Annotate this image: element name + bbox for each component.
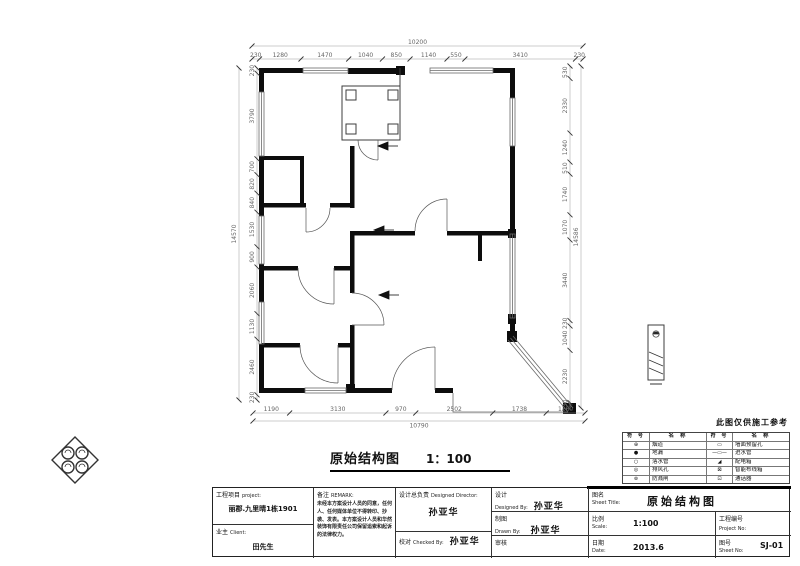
- svg-text:1070: 1070: [562, 220, 569, 235]
- client-cell: 业主 Client: 田先生: [213, 524, 313, 558]
- sheet-title-label-en: Sheet Title:: [592, 500, 620, 506]
- date-cell: 日期 Date: 2013.6: [588, 535, 715, 558]
- designed-label: 设计: [495, 492, 507, 499]
- legend-name: 进水管: [732, 450, 789, 458]
- remark-text: 未经本方案设计人员的同意，任何人、任何媒体单位不得转印、抄袭、发表。本方案设计人…: [317, 501, 392, 540]
- double-circle-icon: ⊚: [623, 476, 649, 484]
- legend-name: 排风孔: [649, 467, 706, 475]
- detail-callout: [649, 331, 663, 384]
- sheet-no-cell: 图号 Sheet No: SJ-01: [715, 535, 791, 558]
- svg-text:230: 230: [562, 317, 569, 329]
- legend-name: 落水管: [649, 459, 706, 467]
- project-no-cell: 工程编号 Project No:: [715, 511, 791, 535]
- svg-text:230: 230: [574, 52, 586, 59]
- sheet-title-label: 图名: [592, 492, 604, 499]
- legend-table: 符 号名 称符 号名 称⊕烟道▭墙面预留孔●地漏—▭—进水管○落水管◢配电箱◎排…: [622, 432, 790, 484]
- client-label-en: Client:: [230, 530, 246, 536]
- svg-text:1040: 1040: [358, 52, 373, 59]
- pipe-icon: —▭—: [706, 450, 732, 458]
- project-no-label-en: Project No:: [719, 526, 746, 532]
- checked-label-en: Checked By:: [413, 540, 444, 546]
- legend-name: 名 称: [732, 433, 789, 441]
- legend-name: 地漏: [649, 450, 706, 458]
- wedge-icon: ◢: [706, 459, 732, 467]
- svg-text:1530: 1530: [249, 222, 256, 237]
- svg-text:230: 230: [562, 399, 569, 411]
- director-cell: 设计总负责 Designed Director: 孙亚华: [395, 488, 491, 531]
- svg-text:14570: 14570: [231, 224, 238, 243]
- svg-text:1140: 1140: [421, 52, 436, 59]
- company-logo-icon: [52, 437, 98, 483]
- svg-text:1130: 1130: [249, 319, 256, 334]
- ring-icon: ◎: [623, 467, 649, 475]
- director-label: 设计总负责: [399, 492, 429, 499]
- scale-cell: 比例 Scale: 1:100: [588, 511, 715, 535]
- svg-text:1740: 1740: [562, 187, 569, 202]
- drawn-label: 制图: [495, 516, 507, 523]
- slot-icon: ▭: [706, 442, 732, 450]
- svg-text:820: 820: [249, 178, 256, 190]
- drawing-sheet: { "sheet": { "note": "此图仅供施工参考", "drawin…: [0, 0, 800, 566]
- svg-text:230: 230: [249, 391, 256, 403]
- legend-name: 通话器: [732, 476, 789, 484]
- walls: [259, 66, 576, 414]
- svg-text:840: 840: [249, 197, 256, 209]
- project-label-en: project:: [242, 493, 261, 499]
- review-cell: 审核: [491, 535, 588, 558]
- construction-note: 此图仅供施工参考: [660, 417, 788, 428]
- svg-text:1040: 1040: [562, 330, 569, 345]
- svg-text:1738: 1738: [512, 406, 527, 413]
- doors: [298, 140, 447, 390]
- svg-text:2502: 2502: [447, 406, 462, 413]
- project-no-label: 工程编号: [719, 516, 743, 523]
- svg-text:14586: 14586: [573, 227, 580, 246]
- svg-text:2060: 2060: [249, 283, 256, 298]
- project-cell: 工程项目 project: 丽郡.九里晴1栋1901: [213, 488, 313, 524]
- title-block: 工程项目 project: 丽郡.九里晴1栋1901 业主 Client: 田先…: [212, 487, 790, 557]
- remark-cell: 备注 REMARK: 未经本方案设计人员的同意，任何人、任何媒体单位不得转印、抄…: [313, 488, 395, 558]
- svg-text:10200: 10200: [408, 39, 427, 46]
- legend-row: ⊚防溅闸⊡通话器: [623, 475, 789, 484]
- legend-name: 名 称: [649, 433, 706, 441]
- legend-row: ◎排风孔⊠智能布线箱: [623, 466, 789, 475]
- fixtures: [342, 68, 664, 380]
- date-value: 2013.6: [633, 543, 664, 552]
- sheet-title-cell: 图名 Sheet Title: 原始结构图: [588, 488, 791, 511]
- svg-text:2330: 2330: [562, 98, 569, 113]
- windows: [259, 68, 573, 412]
- svg-text:10790: 10790: [409, 423, 428, 430]
- director-signature: 孙亚华: [399, 505, 488, 518]
- sheet-no-label-en: Sheet No:: [719, 548, 744, 554]
- drawing-title: 原始结构图: [330, 448, 400, 467]
- designed-signature: 孙亚华: [534, 502, 564, 511]
- svg-text:3130: 3130: [330, 406, 345, 413]
- svg-text:230: 230: [249, 65, 256, 77]
- drawing-scale: 1：100: [426, 450, 471, 467]
- legend-row: ○落水管◢配电箱: [623, 458, 789, 467]
- svg-text:230: 230: [250, 52, 262, 59]
- legend-symbol-header: 符 号: [706, 433, 732, 441]
- checked-signature: 孙亚华: [450, 537, 480, 547]
- checked-cell: 校对 Checked By: 孙亚华: [395, 531, 491, 558]
- legend-name: 墙面预留孔: [732, 442, 789, 450]
- legend-row: ●地漏—▭—进水管: [623, 449, 789, 458]
- checked-label: 校对: [399, 539, 411, 546]
- level-markers: [374, 142, 399, 299]
- circle-icon: ○: [623, 459, 649, 467]
- date-label-en: Date:: [592, 548, 606, 554]
- sheet-no-value: SJ-01: [760, 541, 783, 550]
- review-label: 审核: [495, 540, 507, 547]
- svg-text:530: 530: [562, 66, 569, 78]
- svg-text:850: 850: [391, 52, 403, 59]
- box-dot-icon: ⊡: [706, 476, 732, 484]
- svg-text:700: 700: [249, 161, 256, 173]
- remark-label-en: REMARK:: [331, 493, 354, 499]
- scale-value: 1:100: [633, 519, 658, 528]
- filled-circle-icon: ●: [623, 450, 649, 458]
- svg-text:1240: 1240: [562, 140, 569, 155]
- legend-name: 配电箱: [732, 459, 789, 467]
- scale-label: 比例: [592, 516, 604, 523]
- client-name: 田先生: [216, 542, 310, 552]
- svg-text:1280: 1280: [273, 52, 288, 59]
- director-label-en: Designed Director:: [431, 493, 478, 499]
- remark-label: 备注: [317, 492, 329, 499]
- circle-cross-icon: ⊕: [623, 442, 649, 450]
- svg-text:1470: 1470: [317, 52, 332, 59]
- svg-text:2460: 2460: [249, 359, 256, 374]
- client-label: 业主: [216, 529, 228, 536]
- box-x-icon: ⊠: [706, 467, 732, 475]
- legend-symbol-header: 符 号: [623, 433, 649, 441]
- project-name: 丽郡.九里晴1栋1901: [216, 504, 310, 514]
- legend-header-row: 符 号名 称符 号名 称: [623, 433, 789, 441]
- sheet-title-value: 原始结构图: [647, 493, 717, 509]
- svg-text:3790: 3790: [249, 108, 256, 123]
- sheet-no-label: 图号: [719, 540, 731, 547]
- drawn-cell: 制图 Drawn By: 孙亚华: [491, 511, 588, 535]
- designed-cell: 设计 Designed By: 孙亚华: [491, 488, 588, 511]
- svg-text:510: 510: [562, 162, 569, 174]
- svg-text:1190: 1190: [264, 406, 279, 413]
- svg-text:2230: 2230: [562, 369, 569, 384]
- legend-name: 智能布线箱: [732, 467, 789, 475]
- svg-text:3440: 3440: [562, 272, 569, 287]
- legend-row: ⊕烟道▭墙面预留孔: [623, 441, 789, 450]
- svg-text:3410: 3410: [513, 52, 528, 59]
- svg-text:970: 970: [395, 406, 407, 413]
- date-label: 日期: [592, 540, 604, 547]
- svg-text:550: 550: [450, 52, 462, 59]
- legend-name: 烟道: [649, 442, 706, 450]
- drawing-title-block: 原始结构图 1：100: [330, 448, 510, 472]
- legend-name: 防溅闸: [649, 476, 706, 484]
- drawn-signature: 孙亚华: [530, 526, 560, 535]
- svg-text:900: 900: [249, 251, 256, 263]
- scale-label-en: Scale:: [592, 524, 607, 530]
- project-label: 工程项目: [216, 492, 240, 499]
